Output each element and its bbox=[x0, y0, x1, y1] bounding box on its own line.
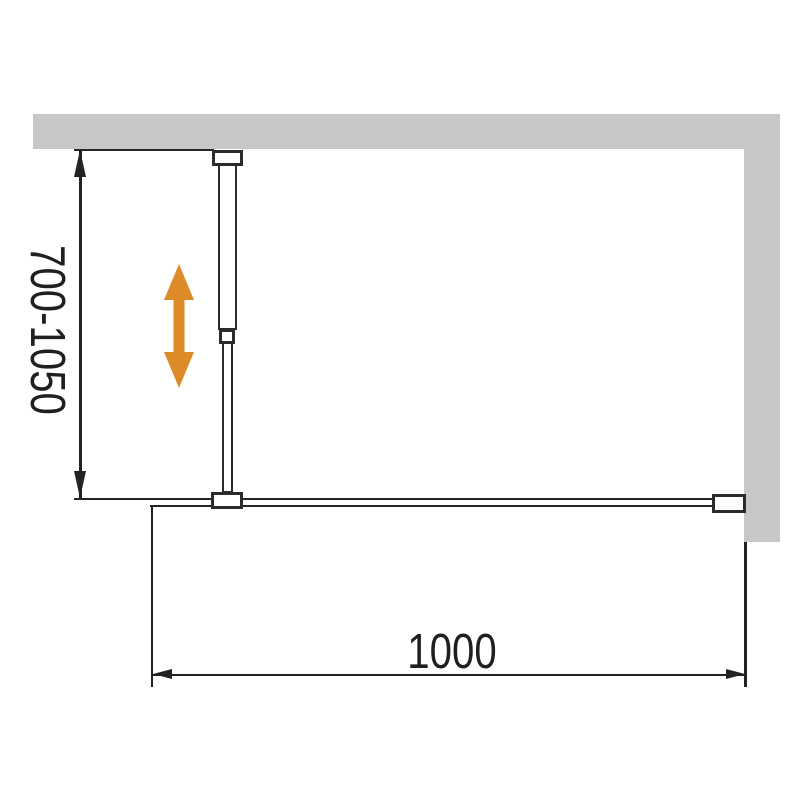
support-bar-upper-tube bbox=[218, 164, 238, 330]
width-extension-line-right bbox=[744, 542, 747, 687]
width-dimension-arrow-right-icon bbox=[726, 669, 745, 679]
glass-panel-top-edge bbox=[74, 498, 715, 501]
height-dimension-label: 700-1050 bbox=[22, 166, 72, 494]
height-dimension-arrow-down-icon bbox=[74, 471, 86, 498]
wall-right bbox=[744, 149, 780, 542]
glass-wall-bracket bbox=[712, 494, 746, 514]
support-bar-glass-clamp bbox=[211, 492, 243, 510]
wall-top bbox=[33, 114, 780, 149]
width-dimension-label: 1000 bbox=[288, 627, 616, 677]
wall-underside-extension-line bbox=[74, 149, 214, 152]
shower-screen-installation-diagram: 700-1050 1000 bbox=[0, 0, 800, 800]
support-bar-lower-tube bbox=[222, 342, 233, 493]
height-dimension-arrow-up-icon bbox=[74, 150, 86, 177]
adjustable-height-arrow-icon bbox=[163, 263, 195, 389]
width-dimension-arrow-left-icon bbox=[153, 669, 172, 679]
height-dimension-line bbox=[79, 150, 82, 498]
width-extension-line-left bbox=[151, 507, 154, 687]
